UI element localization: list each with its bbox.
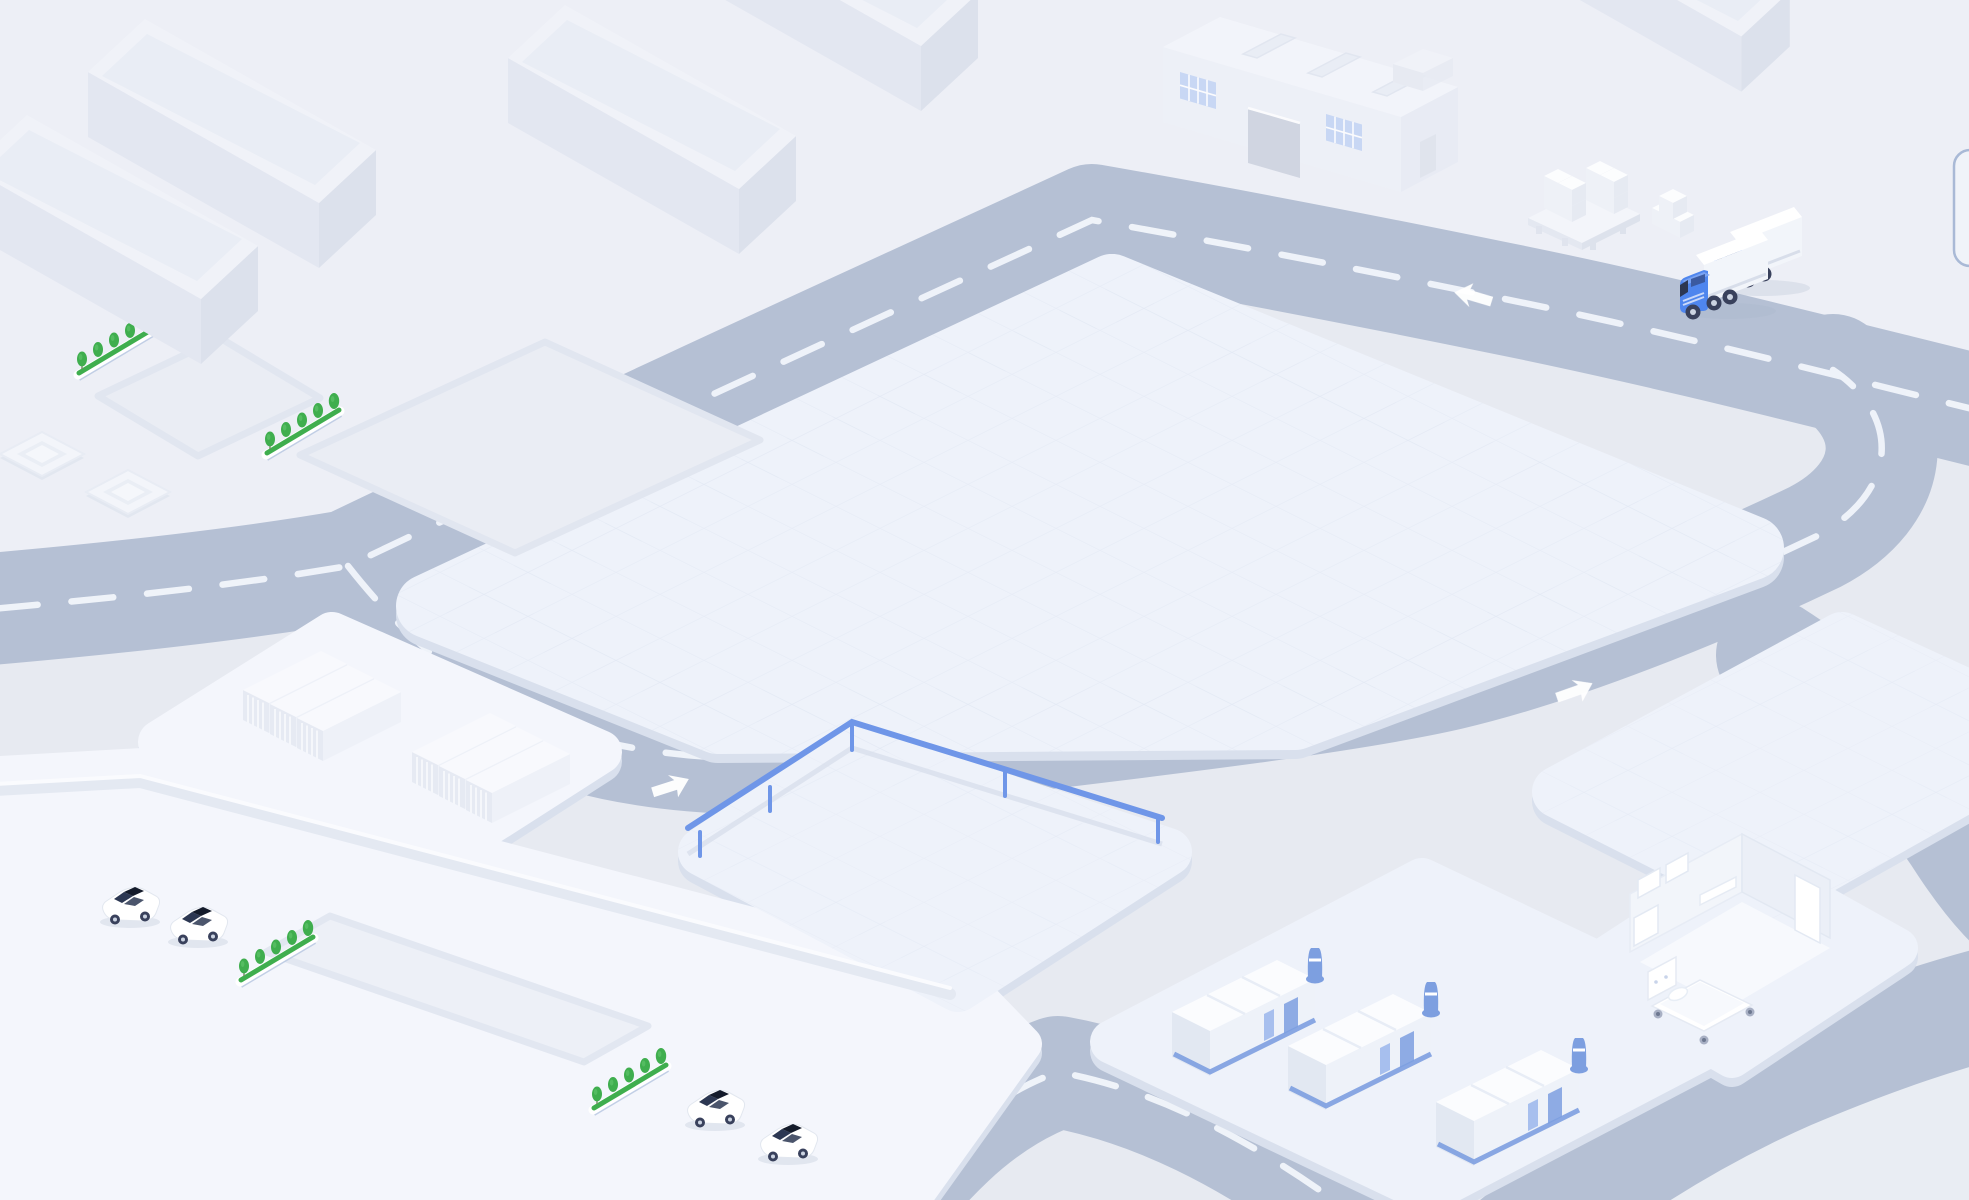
- edge-card-fragment[interactable]: [1954, 150, 1969, 266]
- isometric-campus-scene: [0, 0, 1969, 1200]
